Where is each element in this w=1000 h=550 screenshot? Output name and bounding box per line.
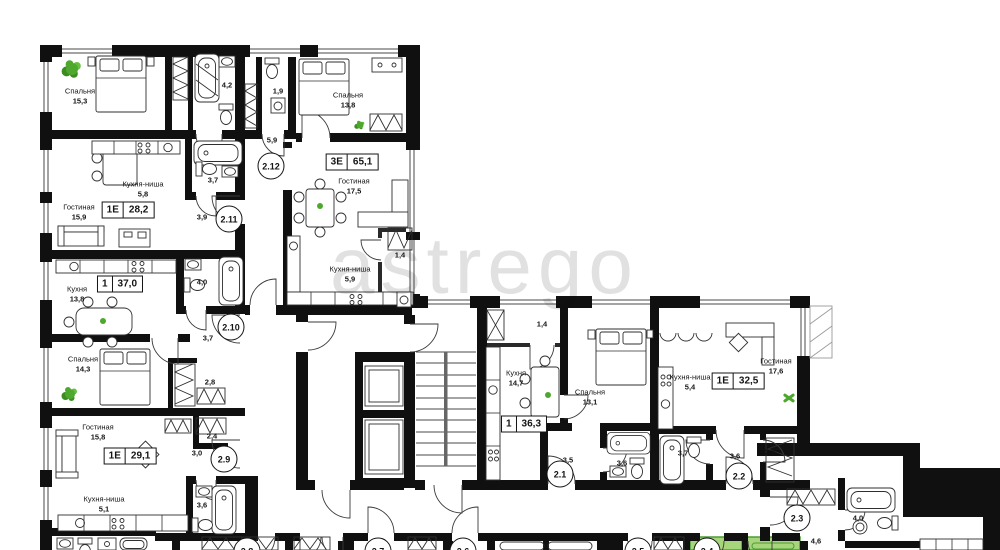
sink-icon <box>219 56 235 67</box>
toilet-icon <box>687 437 701 458</box>
room-name: Спальня <box>333 90 363 100</box>
room-name: Спальня <box>575 387 605 397</box>
wardrobe-icon <box>245 84 257 128</box>
kitchen-counter <box>58 515 188 531</box>
elevator-icon <box>365 366 403 474</box>
area-tag: 3,6 <box>617 459 627 468</box>
sink-icon <box>196 486 212 497</box>
room-name: Гостиная <box>82 422 113 432</box>
apartment-area: 37,0 <box>113 277 142 292</box>
bed-icon <box>88 56 154 112</box>
wardrobe-icon <box>173 57 188 100</box>
plant-icon <box>317 203 323 209</box>
apartment-type-badge: 1Е32,5 <box>712 373 765 390</box>
room-area: 5,8 <box>122 189 163 199</box>
sink-icon <box>57 538 73 549</box>
room-area: 15,9 <box>63 212 94 222</box>
dresser-icon <box>372 58 402 72</box>
plant-icon <box>66 63 78 75</box>
apartment-area: 28,2 <box>124 203 153 218</box>
room-area: 5,1 <box>83 504 124 514</box>
room-name: Кухня-ниша <box>329 264 370 274</box>
room-name: Гостиная <box>338 176 369 186</box>
area-tag: 1,4 <box>537 320 547 329</box>
wardrobe-icon <box>175 364 195 406</box>
plant-icon <box>100 318 106 324</box>
area-tag: 3,7 <box>208 176 218 185</box>
room-label: Гостиная17,5 <box>338 176 369 196</box>
area-tag: 4,2 <box>222 81 232 90</box>
room-name: Гостиная <box>63 202 94 212</box>
room-name: Кухня <box>506 368 526 378</box>
apartment-type-badge: 136,3 <box>501 416 547 433</box>
room-name: Кухня-ниша <box>83 494 124 504</box>
washer-icon <box>397 292 411 307</box>
room-name: Кухня-ниша <box>669 372 710 382</box>
shower-icon <box>98 538 116 550</box>
bed-icon <box>588 329 653 385</box>
wardrobe-icon <box>197 388 225 404</box>
area-tag: 1,4 <box>395 251 405 260</box>
kitchen-counter <box>486 310 504 480</box>
room-name: Спальня <box>68 354 98 364</box>
kitchen-counter <box>92 141 180 154</box>
area-tag: 4,6 <box>811 537 821 546</box>
area-tag: 1,9 <box>273 87 283 96</box>
sofa-icon <box>56 430 78 478</box>
plant-icon <box>545 392 551 398</box>
unit-number-circle: 2.3 <box>784 505 811 532</box>
toilet-icon <box>219 104 233 125</box>
balcony-railing <box>810 306 832 358</box>
room-area: 5,4 <box>669 382 710 392</box>
bathtub-icon <box>847 488 895 512</box>
toilet-icon <box>265 58 279 79</box>
bathtub-icon <box>194 141 242 165</box>
room-label: Спальня14,3 <box>68 354 98 374</box>
room-area: 5,9 <box>329 274 370 284</box>
apartment-type: 1 <box>98 277 113 292</box>
apartment-type: 3Е <box>327 155 348 170</box>
washer-icon <box>271 98 285 113</box>
room-area: 14,7 <box>506 378 526 388</box>
wardrobe-icon <box>370 114 402 131</box>
sofa-icon <box>58 226 104 246</box>
room-area: 17,5 <box>338 186 369 196</box>
toilet-icon <box>196 162 217 176</box>
apartment-area: 29,1 <box>126 449 155 464</box>
bathtub-icon <box>548 542 592 550</box>
apartment-type-badge: 3Е65,1 <box>326 154 379 171</box>
apartment-type-badge: 1Е29,1 <box>104 448 157 465</box>
desk-icon <box>119 229 150 247</box>
area-tag: 3,6 <box>197 501 207 510</box>
room-name: Гостиная <box>760 356 791 366</box>
area-tag: 2,2 <box>765 448 775 457</box>
toilet-icon <box>192 518 213 532</box>
room-area: 15,8 <box>82 432 113 442</box>
bathtub-icon <box>219 257 243 305</box>
room-label: Кухня-ниша5,4 <box>669 372 710 392</box>
room-label: Кухня-ниша5,8 <box>122 179 163 199</box>
bed-icon <box>100 349 150 405</box>
bathtub-icon <box>195 54 219 102</box>
area-tag: 3,6 <box>730 452 740 461</box>
room-area: 13,1 <box>575 397 605 407</box>
area-tag: 3,7 <box>678 449 688 458</box>
room-label: Кухня-ниша5,9 <box>329 264 370 284</box>
kitchen-counter <box>920 539 983 550</box>
apartment-area: 65,1 <box>348 155 377 170</box>
floor-plan: astrego Спальня15,3Спальня13,8Гостиная17… <box>0 0 1000 550</box>
plant-icon <box>357 122 364 129</box>
unit-number-circle: 2.1 <box>547 461 574 488</box>
floorplan-drawing <box>0 0 1000 550</box>
sink-icon <box>185 259 201 270</box>
bathtub-icon <box>660 436 684 484</box>
room-name: Спальня <box>65 86 95 96</box>
room-area: 15,3 <box>65 96 95 106</box>
unit-number-circle: 2.12 <box>258 153 285 180</box>
sink-icon <box>610 466 626 477</box>
room-label: Кухня13,8 <box>67 284 87 304</box>
toilet-icon <box>78 538 92 550</box>
stairs <box>416 352 476 466</box>
area-tag: 3,9 <box>197 213 207 222</box>
bathtub-icon <box>212 486 236 534</box>
area-tag: 4,0 <box>853 514 863 523</box>
room-label: Гостиная17,6 <box>760 356 791 376</box>
toilet-icon <box>878 516 899 530</box>
room-name: Кухня-ниша <box>122 179 163 189</box>
unit-number-circle: 2.2 <box>726 463 753 490</box>
bathtub-icon <box>607 432 650 454</box>
room-area: 13,8 <box>333 100 363 110</box>
area-tag: 5,9 <box>267 136 277 145</box>
room-area: 13,8 <box>67 294 87 304</box>
room-label: Спальня13,1 <box>575 387 605 407</box>
apartment-type: 1 <box>502 417 517 432</box>
area-tag: 2,8 <box>205 378 215 387</box>
room-label: Кухня14,7 <box>506 368 526 388</box>
apartment-area: 36,3 <box>517 417 546 432</box>
room-label: Гостиная15,8 <box>82 422 113 442</box>
unit-number-circle: 2.10 <box>218 314 245 341</box>
room-area: 14,3 <box>68 364 98 374</box>
bathtub-icon <box>120 538 147 550</box>
unit-number-circle: 2.11 <box>216 206 243 233</box>
room-name: Кухня <box>67 284 87 294</box>
room-label: Спальня15,3 <box>65 86 95 106</box>
area-tag: 3,7 <box>203 334 213 343</box>
room-area: 17,6 <box>760 366 791 376</box>
area-tag: 4,0 <box>197 278 207 287</box>
area-tag: 2,4 <box>207 432 217 441</box>
apartment-area: 32,5 <box>734 374 763 389</box>
plant-icon <box>783 391 796 404</box>
bathtub-icon <box>500 542 544 550</box>
apartment-type-badge: 1Е28,2 <box>102 202 155 219</box>
sink-icon <box>222 166 238 177</box>
area-tag: 3,0 <box>192 449 202 458</box>
room-label: Кухня-ниша5,1 <box>83 494 124 514</box>
apartment-type-badge: 137,0 <box>97 276 143 293</box>
room-label: Спальня13,8 <box>333 90 363 110</box>
toilet-icon <box>630 458 644 479</box>
kitchen-counter <box>56 260 176 273</box>
room-label: Гостиная15,9 <box>63 202 94 222</box>
plant-icon <box>65 389 75 399</box>
unit-number-circle: 2.9 <box>211 446 238 473</box>
apartment-type: 1Е <box>103 203 124 218</box>
apartment-type: 1Е <box>713 374 734 389</box>
apartment-type: 1Е <box>105 449 126 464</box>
wardrobe-icon <box>165 419 191 433</box>
